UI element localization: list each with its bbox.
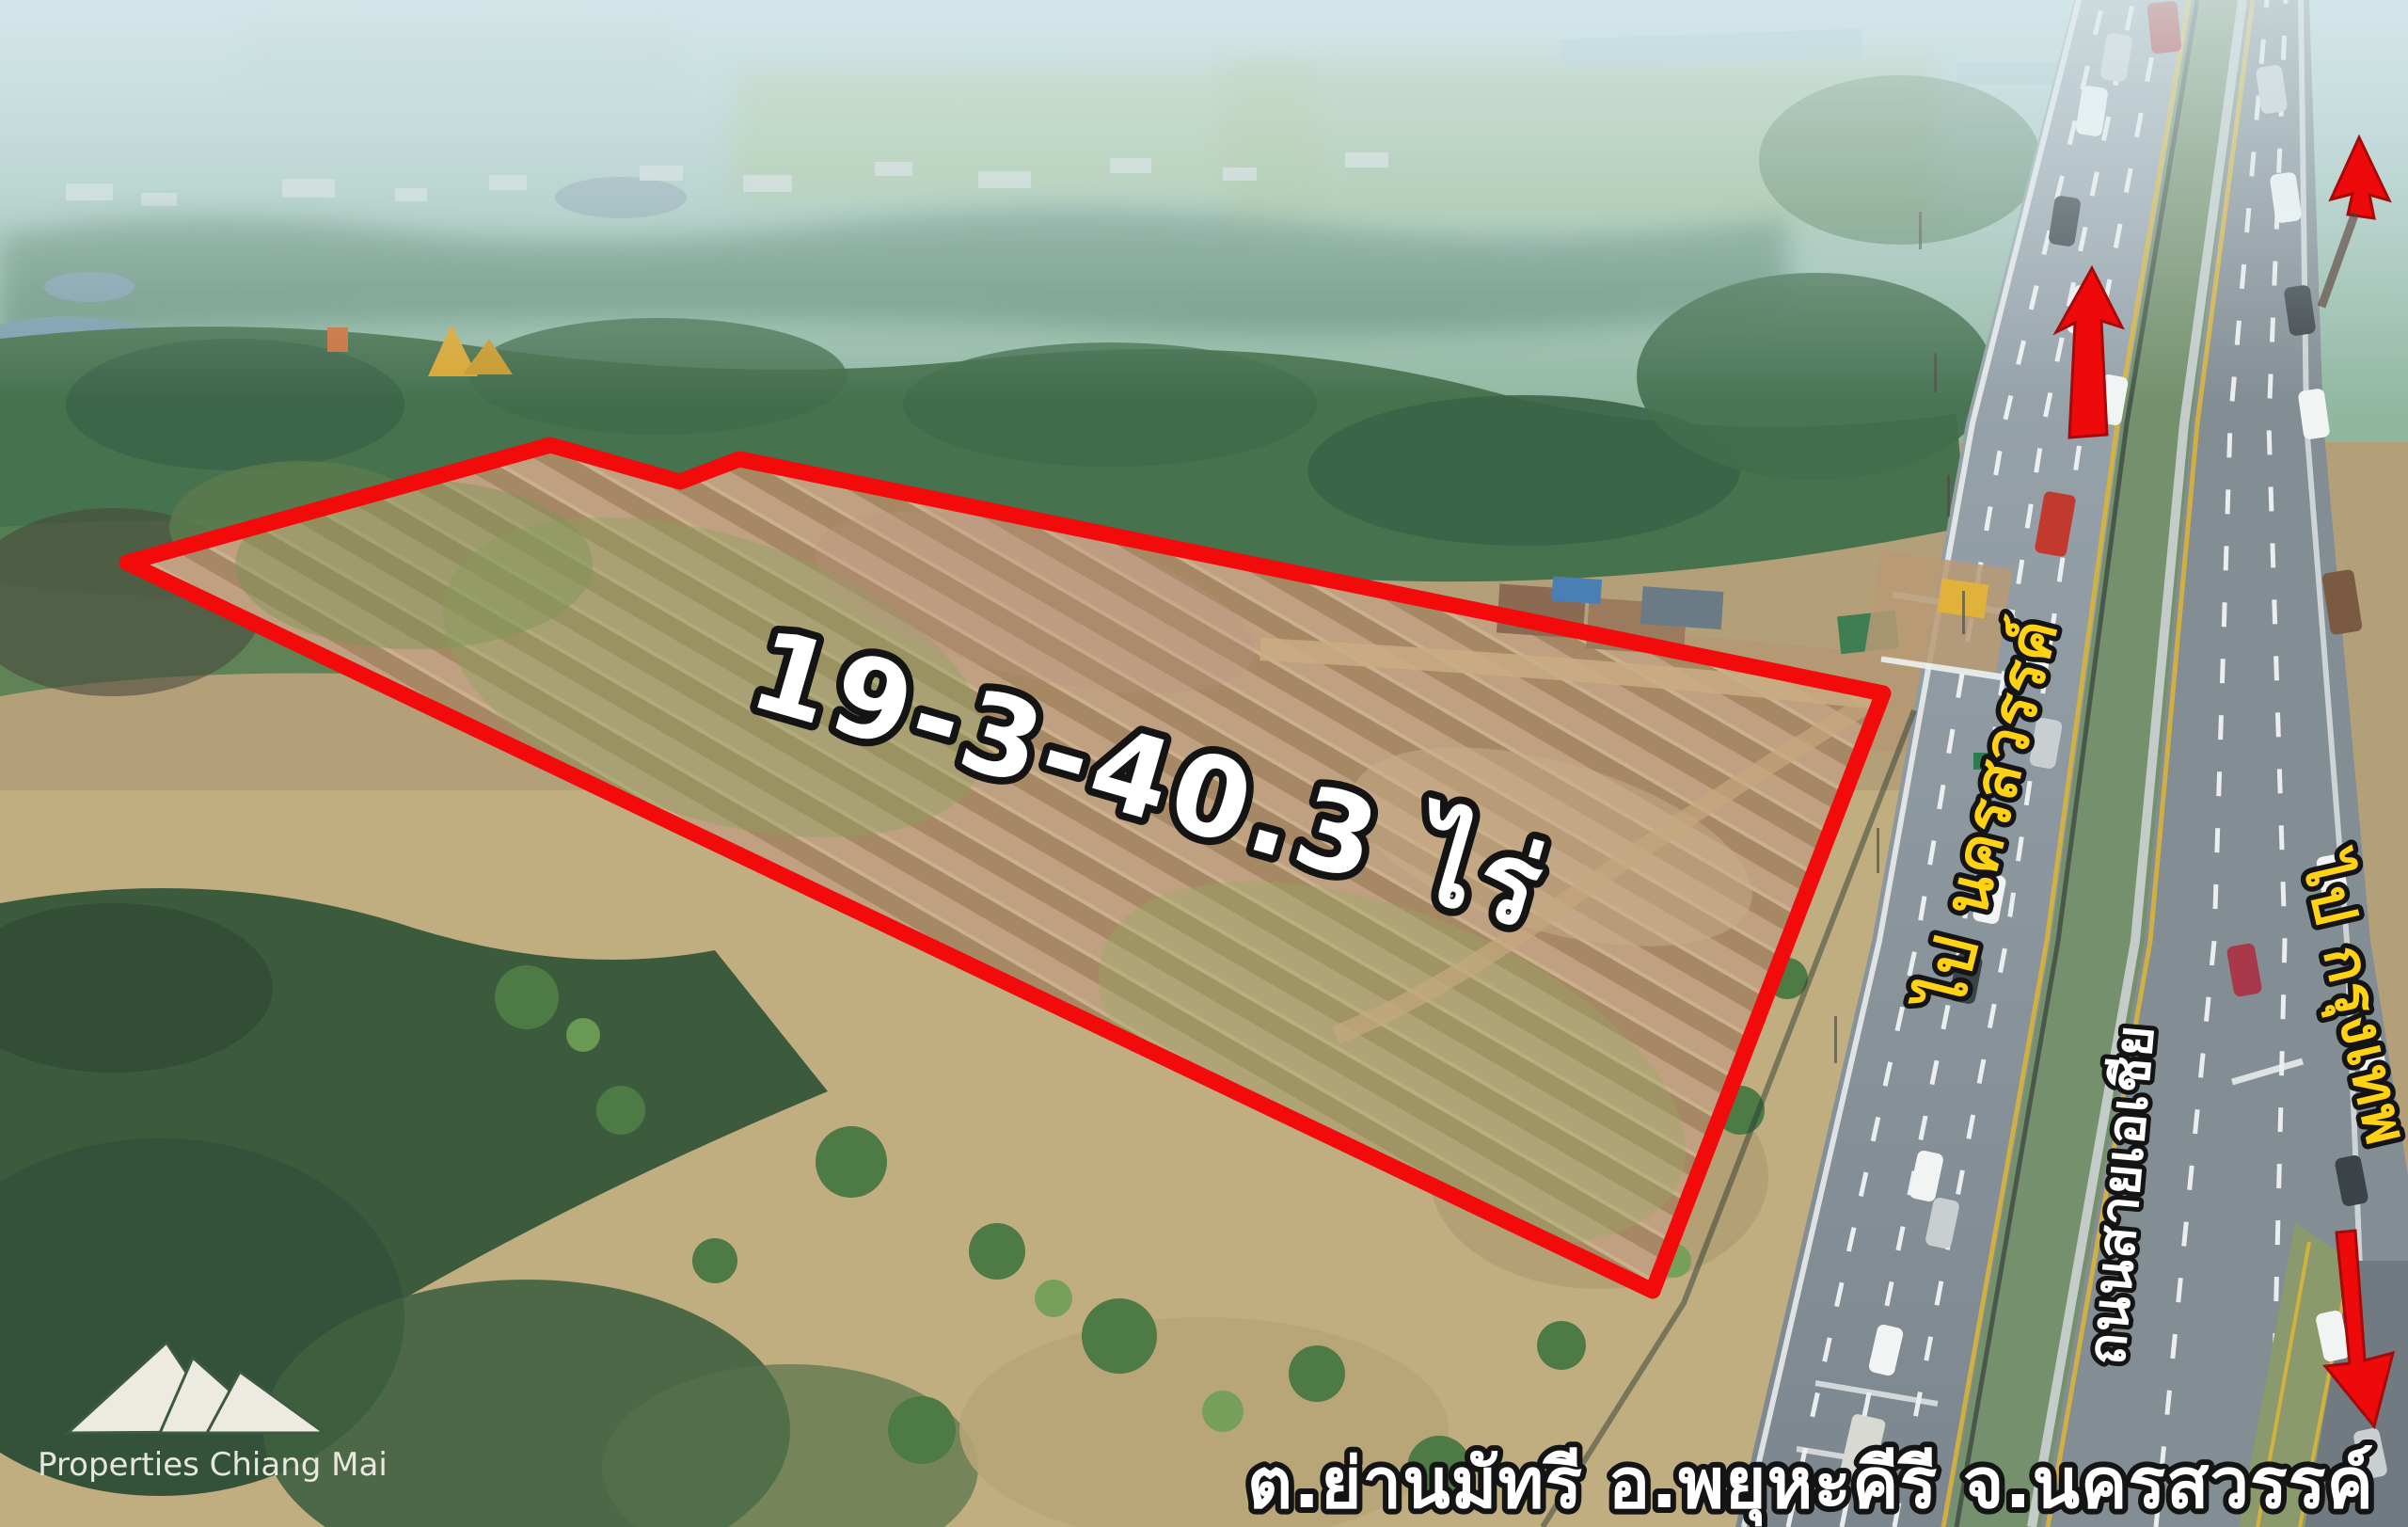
- haze-overlay: [0, 0, 2408, 405]
- location-label: ต.ย่านมัทรี อ.พยุหะคีรี จ.นครสวรรค์: [1247, 1443, 2374, 1527]
- screenshot-root: 19-3-40.3 ไร่ ไป นครสวรรค์ ถนนสายเอเชีย …: [0, 0, 2408, 1527]
- brand-label: Properties Chiang Mai: [38, 1446, 388, 1484]
- aerial-photo: 19-3-40.3 ไร่ ไป นครสวรรค์ ถนนสายเอเชีย …: [0, 0, 2408, 1527]
